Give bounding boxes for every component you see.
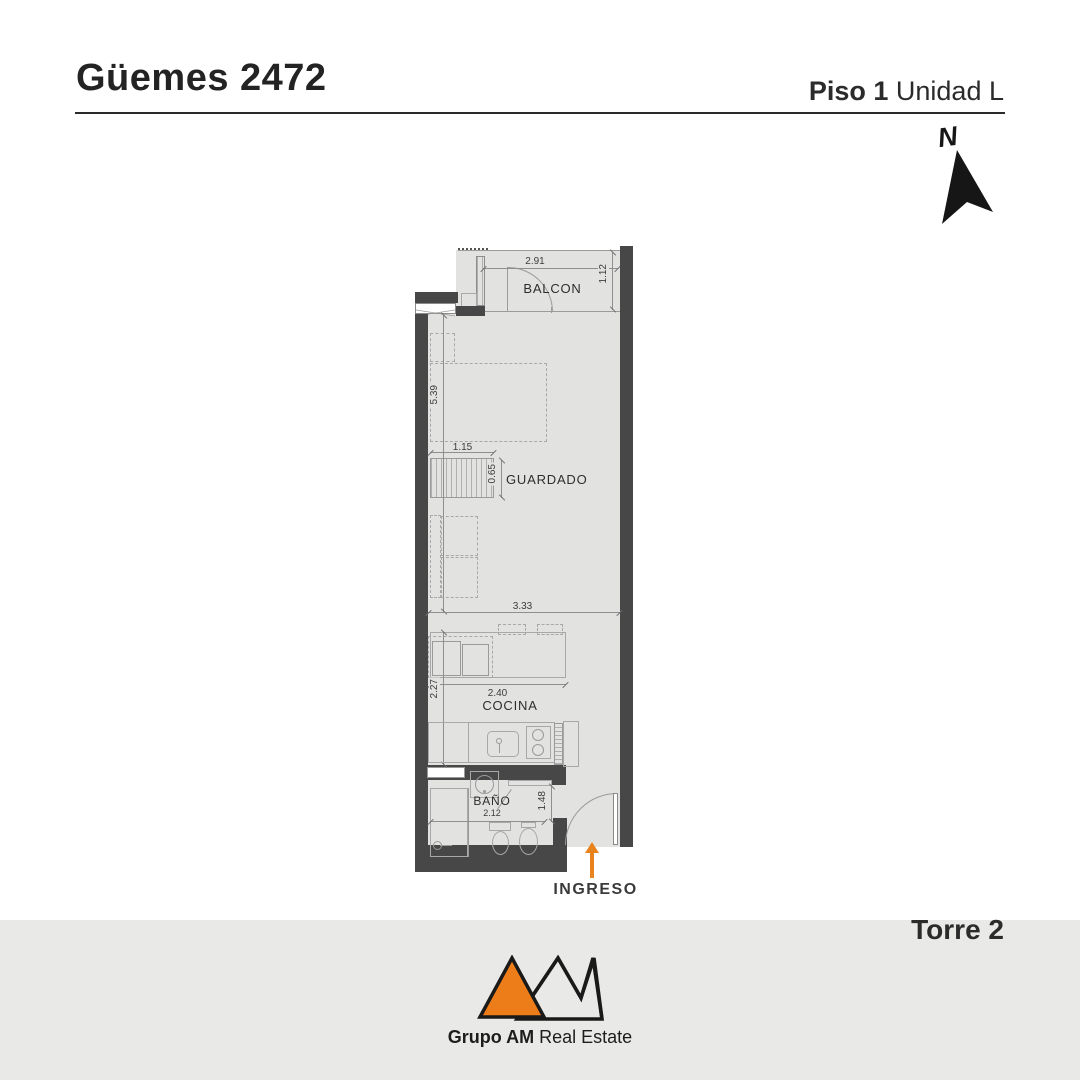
wall-right <box>620 246 633 847</box>
dim-balcony-depth: 1.12 <box>598 262 609 285</box>
dim-living-length-line <box>443 315 444 612</box>
balcony-label: BALCON <box>510 281 595 296</box>
toilet-bowl <box>492 831 509 855</box>
entry-label: INGRESO <box>548 881 643 899</box>
poster-page: Güemes 2472 Piso 1 Unidad L N BALCON 2.9… <box>0 0 1080 1080</box>
chair-2 <box>441 557 478 598</box>
wall-balcony-stub <box>456 306 485 316</box>
stool-1 <box>498 624 526 635</box>
island-appliance-2 <box>462 644 489 676</box>
shower-arm <box>440 845 452 846</box>
dim-living-width: 3.33 <box>495 601 550 612</box>
kitchen-cabinet <box>428 722 469 763</box>
dim-closet-depth: 0.65 <box>487 462 498 485</box>
dim-bath-width: 2.12 <box>462 808 522 818</box>
island-appliance-1 <box>432 641 461 676</box>
bath-shelf <box>508 780 552 786</box>
desk <box>430 515 441 598</box>
dim-living-width-line <box>428 612 620 613</box>
brand-name: Grupo AM Real Estate <box>420 1027 660 1048</box>
wall-left <box>415 314 428 872</box>
burner-1 <box>532 729 544 741</box>
closet <box>430 458 494 498</box>
entry-door-leaf <box>613 793 618 845</box>
bidet-bowl <box>519 828 538 855</box>
dim-hall-length: 1.48 <box>537 789 548 812</box>
storage-label: GUARDADO <box>506 472 591 487</box>
bed <box>430 363 547 442</box>
wall-top-left-stub <box>415 292 458 303</box>
dim-closet-depth-line <box>501 460 502 498</box>
washbasin-drain <box>483 790 486 793</box>
brand-name-bold: Grupo AM <box>448 1027 534 1047</box>
wall-bath-right-stub <box>553 818 567 872</box>
dim-kitchen-length: 2.27 <box>429 677 440 700</box>
toilet-tank <box>489 822 511 831</box>
chair-1 <box>441 516 478 556</box>
wall-hall-corner <box>551 765 566 785</box>
stool-2 <box>537 624 563 635</box>
balcony-door-leaf <box>507 267 508 312</box>
faucet-stem <box>499 744 500 753</box>
brand-logo <box>477 955 605 1021</box>
dim-balcony-width: 2.91 <box>505 256 565 267</box>
bathroom-label: BAÑO <box>462 794 522 808</box>
balcony-railing-dashes <box>458 248 488 251</box>
fridge <box>563 721 579 767</box>
bathroom-door-opening <box>427 767 465 778</box>
fridge-hatch <box>554 723 563 765</box>
tower-label: Torre 2 <box>911 914 1004 946</box>
sink <box>487 731 519 757</box>
burner-2 <box>532 744 544 756</box>
entry-arrow-stem <box>590 852 594 878</box>
brand-name-regular: Real Estate <box>539 1027 632 1047</box>
dim-counter-width-line <box>430 684 566 685</box>
kitchen-label: COCINA <box>455 698 565 713</box>
dim-hall-length-line <box>551 786 552 822</box>
window-left <box>415 303 456 314</box>
dim-balcony-depth-line <box>612 252 613 310</box>
dim-living-length: 5.39 <box>429 383 440 406</box>
balcony-divider <box>476 256 485 306</box>
